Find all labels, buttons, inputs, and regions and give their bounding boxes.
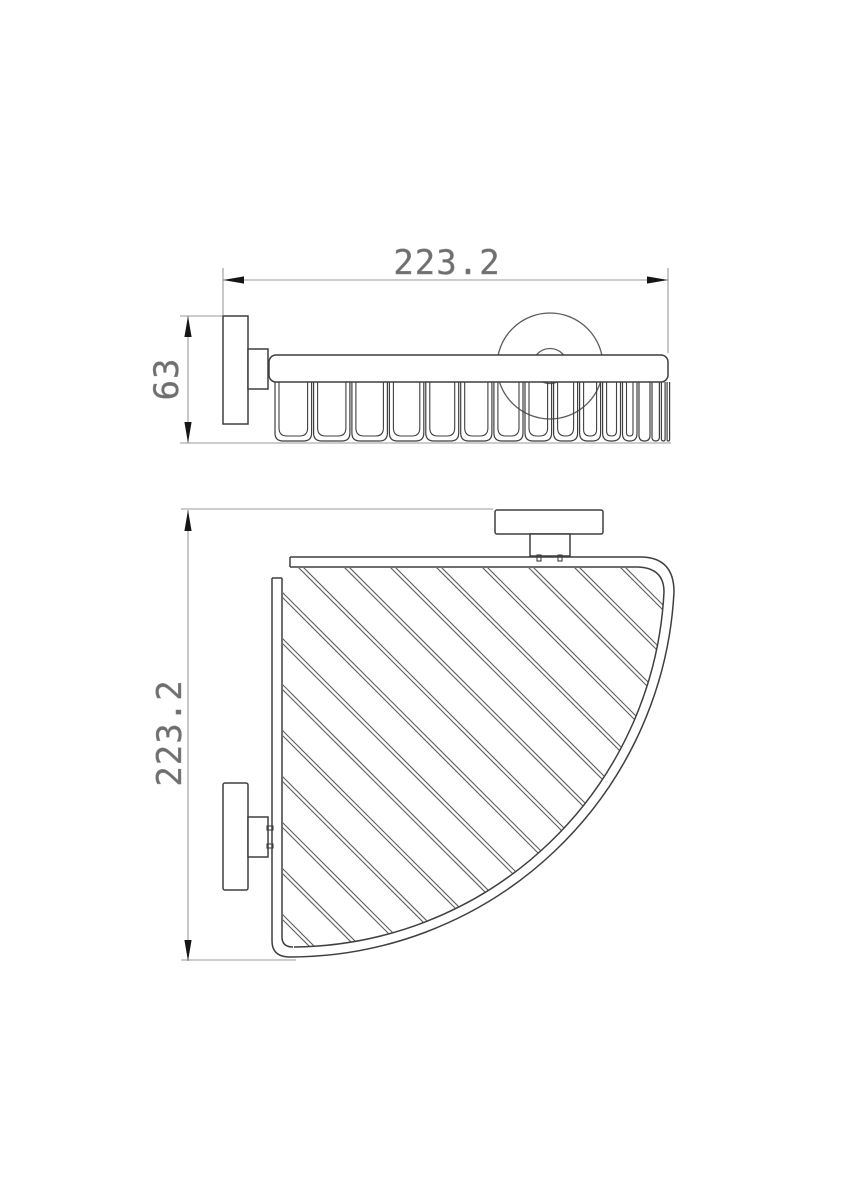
top-view-left-mount-stem [248, 817, 268, 857]
side-view-height-dimension-label: 63 [147, 358, 187, 401]
top-view-rim [272, 557, 674, 957]
dimension-arrowhead [647, 276, 668, 283]
side-view-mount-stem [248, 349, 268, 389]
drawing-svg [0, 0, 848, 1200]
side-view-rim [269, 355, 668, 382]
technical-drawing-canvas: 223.2 63 223.2 [0, 0, 848, 1200]
top-view-depth-dimension-label: 223.2 [150, 679, 190, 786]
side-view-wires [275, 382, 670, 441]
top-view-left-wall-pad [223, 783, 248, 890]
dimension-arrowhead [184, 940, 191, 961]
top-view-wire-hatch [240, 182, 710, 1200]
side-view-width-dimension-label: 223.2 [393, 243, 500, 283]
dimension-arrowhead [184, 510, 191, 531]
side-view-group [223, 313, 668, 424]
dimension-arrowhead [184, 316, 191, 337]
dimension-arrowhead [184, 422, 191, 443]
dimension-arrowhead [223, 276, 244, 283]
top-view-top-mount-stem [530, 534, 570, 556]
side-view-wall-plate [223, 316, 248, 424]
top-view-top-wall-pad [495, 510, 603, 534]
